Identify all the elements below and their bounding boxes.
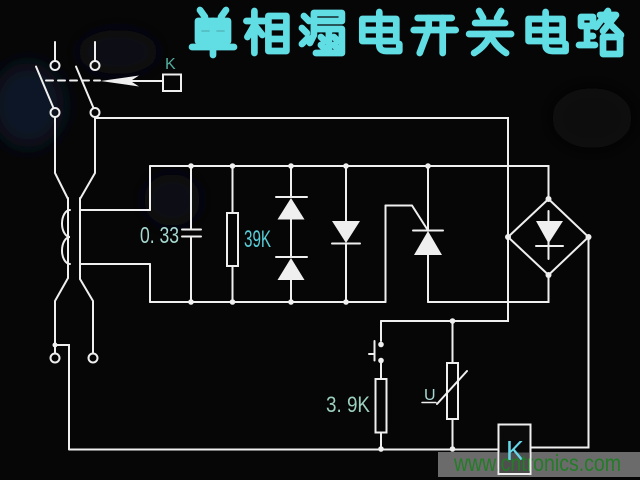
svg-text:39K: 39K <box>244 226 271 253</box>
svg-text:www.cntronics.com: www.cntronics.com <box>453 450 621 476</box>
svg-text:K: K <box>165 56 176 73</box>
svg-text:U: U <box>424 387 436 404</box>
svg-text:0. 33: 0. 33 <box>140 222 179 248</box>
svg-text:3. 9K: 3. 9K <box>326 392 370 417</box>
